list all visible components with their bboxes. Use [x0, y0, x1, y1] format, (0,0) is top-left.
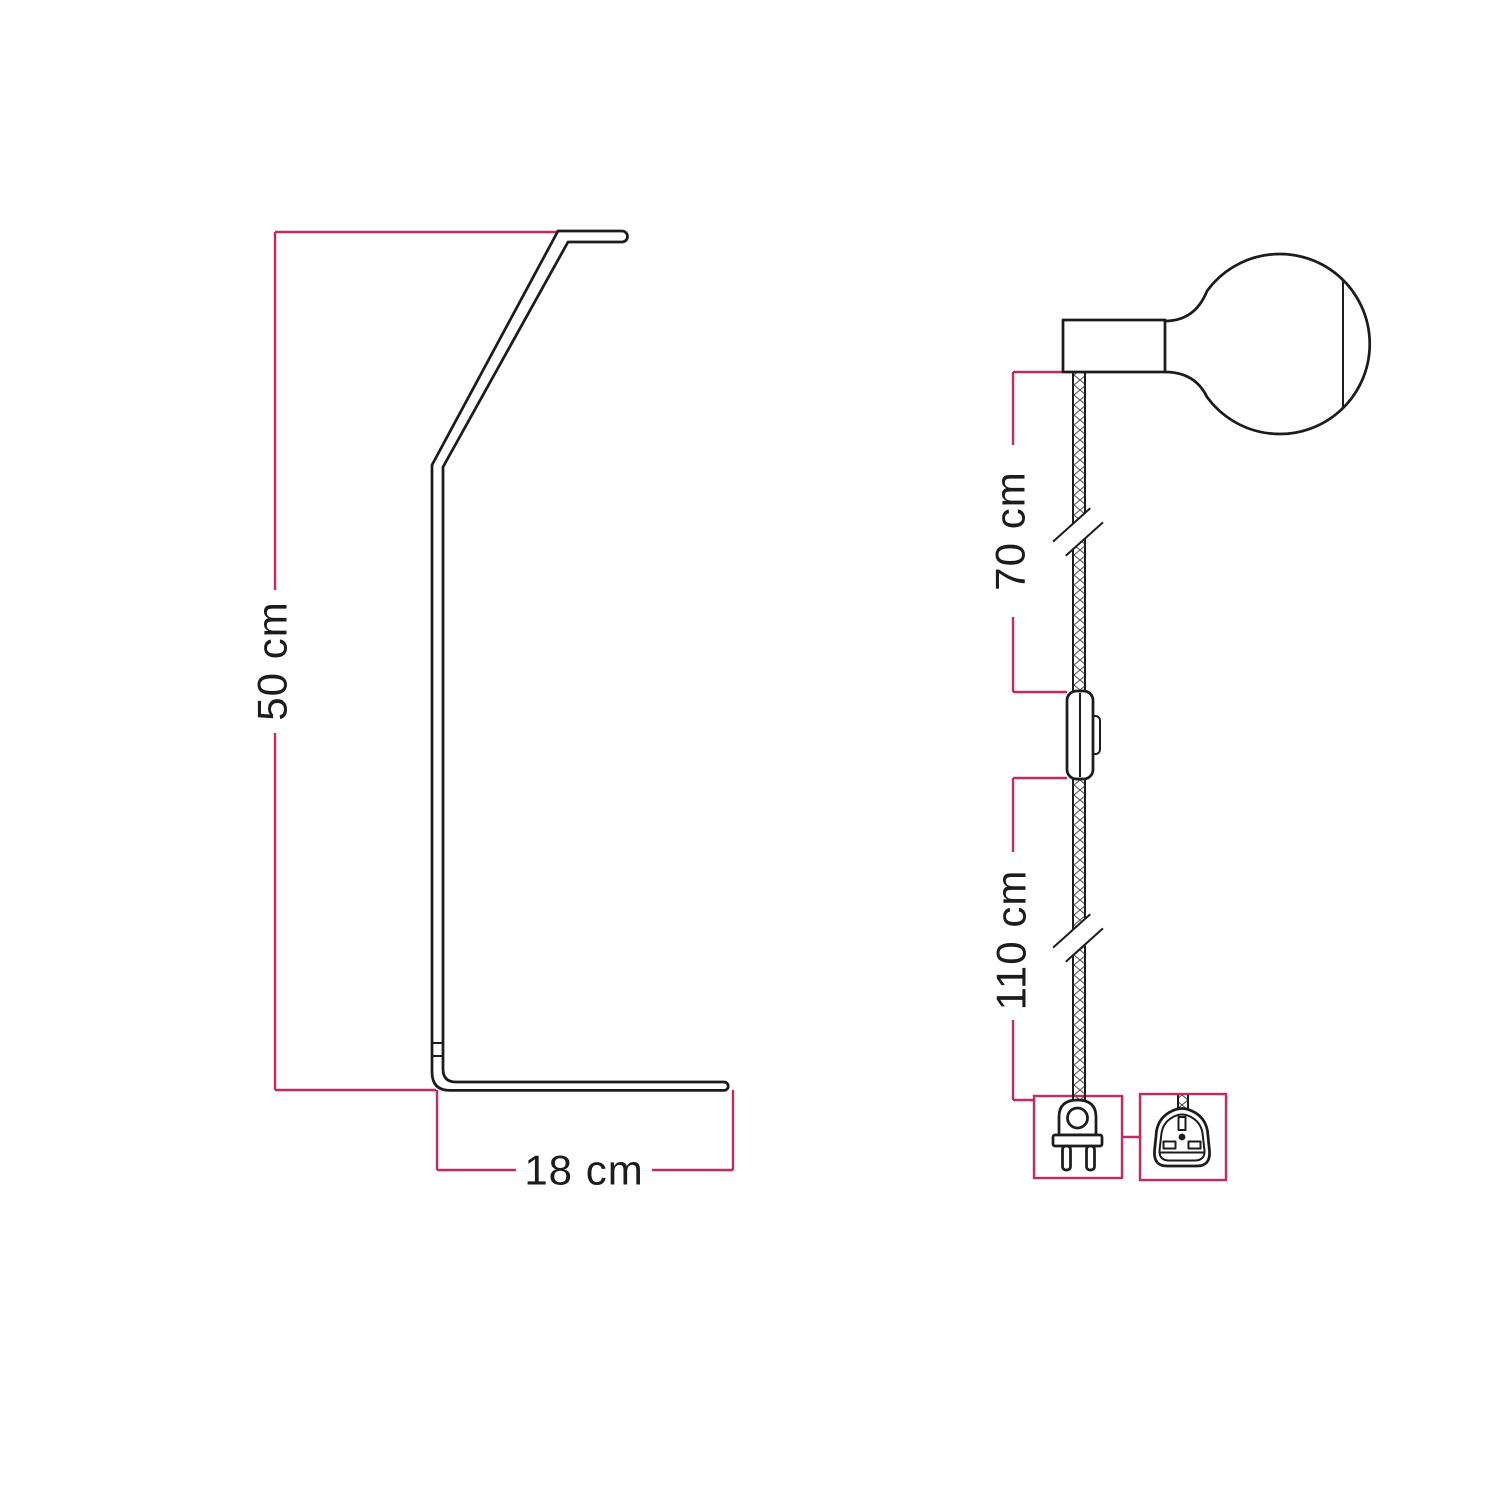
uk-plug-icon	[1154, 1095, 1209, 1166]
stand-joint-marks	[432, 1043, 443, 1056]
dimension-18cm: 18 cm	[437, 1090, 733, 1194]
pendant-lamp-view: 70 cm 110 cm	[987, 254, 1370, 1180]
lower-cable-label: 110 cm	[988, 870, 1035, 1011]
cable-upper	[1053, 372, 1103, 692]
cable-lower	[1053, 779, 1103, 1102]
euro-plug-icon	[1053, 1100, 1102, 1170]
lamp-dimensions-diagram: 50 cm 18 cm 70 cm	[0, 0, 1500, 1500]
technical-drawing-canvas: 50 cm 18 cm 70 cm	[0, 0, 1500, 1500]
stand-height-label: 50 cm	[249, 601, 296, 720]
stand-base-label: 18 cm	[524, 1147, 643, 1194]
stand-view: 50 cm 18 cm	[249, 231, 734, 1194]
dimension-70cm: 70 cm	[987, 372, 1068, 692]
stand-outline-icon	[432, 231, 728, 1090]
light-bulb-icon	[1165, 254, 1370, 434]
inline-switch-icon	[1067, 691, 1100, 779]
dimension-50cm: 50 cm	[249, 232, 558, 1090]
lamp-socket-icon	[1063, 320, 1165, 372]
dimension-110cm: 110 cm	[988, 778, 1068, 1100]
upper-cable-label: 70 cm	[987, 471, 1034, 590]
